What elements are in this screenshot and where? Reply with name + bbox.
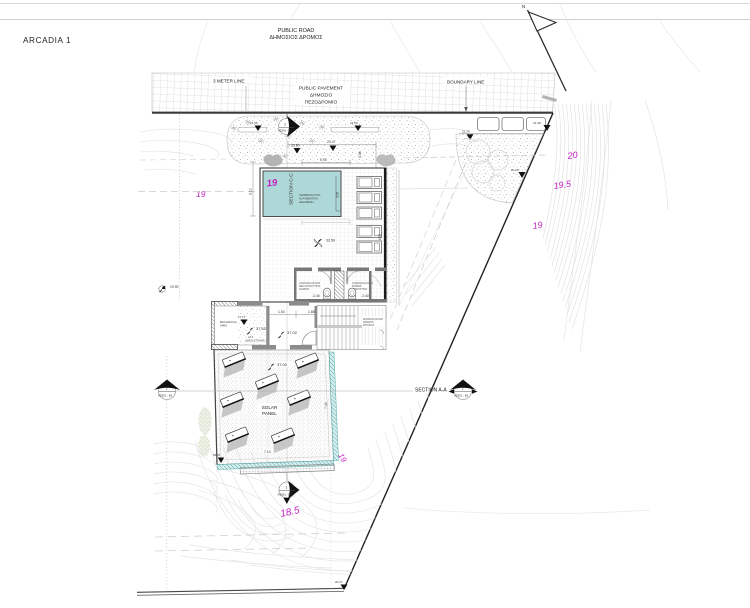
svg-text:20.25: 20.25	[511, 168, 519, 172]
svg-text:ΔΕΞΑΜΕΝΗ: ΔΕΞΑΜΕΝΗ	[299, 200, 314, 204]
svg-text:33.50: 33.50	[291, 144, 300, 148]
svg-text:1.50: 1.50	[278, 310, 285, 314]
svg-text:19: 19	[532, 220, 543, 231]
svg-text:MECHANICAL: MECHANICAL	[220, 320, 238, 324]
svg-text:2: 2	[166, 387, 168, 391]
svg-text:17.77: 17.77	[238, 315, 245, 319]
svg-text:A3351 - B1: A3351 - B1	[278, 493, 293, 497]
svg-text:ARCADIA 1: ARCADIA 1	[23, 36, 71, 45]
svg-text:3.10: 3.10	[249, 188, 253, 195]
svg-text:N: N	[522, 4, 525, 9]
svg-text:BOUNDARY LINE: BOUNDARY LINE	[447, 80, 484, 85]
svg-text:3.05: 3.05	[336, 192, 340, 198]
svg-text:ΚΟΛΥΜΒΗΤΙΚΗ: ΚΟΛΥΜΒΗΤΙΚΗ	[299, 197, 318, 201]
svg-text:1.85: 1.85	[308, 310, 315, 314]
svg-text:20: 20	[566, 150, 578, 161]
svg-text:21.39: 21.39	[462, 130, 470, 134]
svg-text:SOLAR: SOLAR	[262, 405, 278, 410]
svg-text:37.62: 37.62	[256, 326, 267, 331]
svg-text:ΕΡΓΑΣΙΑΣ: ΕΡΓΑΣΙΑΣ	[363, 324, 375, 327]
svg-text:7.10: 7.10	[264, 450, 271, 454]
svg-text:18.20: 18.20	[213, 453, 220, 457]
svg-text:7.30: 7.30	[324, 402, 328, 409]
svg-text:AREA: AREA	[220, 324, 227, 328]
svg-text:ΔΗΜΟΣΙΟ: ΔΗΜΟΣΙΟ	[310, 93, 333, 99]
svg-text:ΠΕΖΟΔΡΟΜΙΟ: ΠΕΖΟΔΡΟΜΙΟ	[305, 100, 338, 106]
svg-text:ΔΗΜΟΣΙΟΣ ΔΡΟΜΟΣ: ΔΗΜΟΣΙΟΣ ΔΡΟΜΟΣ	[269, 35, 323, 41]
svg-text:37.00: 37.00	[277, 362, 288, 367]
svg-text:19: 19	[266, 177, 278, 189]
svg-text:1: 1	[284, 123, 286, 127]
svg-text:20.47: 20.47	[327, 140, 336, 144]
svg-text:(ΑΝΕΛΚΥΣΤΗΡΑΣ): (ΑΝΕΛΚΥΣΤΗΡΑΣ)	[245, 340, 266, 343]
svg-text:19: 19	[196, 189, 206, 199]
svg-text:19.90: 19.90	[170, 285, 179, 289]
svg-text:21.50: 21.50	[350, 121, 358, 125]
svg-text:A3351 - B1: A3351 - B1	[158, 394, 173, 398]
svg-text:PUBLIC PAVEMENT: PUBLIC PAVEMENT	[299, 86, 343, 92]
svg-text:20.27: 20.27	[335, 580, 343, 584]
svg-text:37.02: 37.02	[287, 330, 298, 335]
svg-text:3.46: 3.46	[358, 151, 362, 158]
svg-text:2.40: 2.40	[362, 294, 369, 298]
svg-text:33.50: 33.50	[326, 239, 335, 243]
svg-text:SECTION C-C: SECTION C-C	[289, 173, 295, 205]
svg-text:PANEL: PANEL	[262, 411, 277, 416]
svg-text:A3351 - B1: A3351 - B1	[278, 129, 292, 133]
svg-text:21.38: 21.38	[533, 121, 541, 125]
svg-text:PUBLIC ROAD: PUBLIC ROAD	[278, 28, 315, 34]
svg-text:SWIMMING POOL: SWIMMING POOL	[299, 193, 321, 197]
svg-text:2.40: 2.40	[313, 294, 320, 298]
svg-text:ΑΝΔΡΩΝ: ΑΝΔΡΩΝ	[299, 288, 309, 291]
svg-text:5.95: 5.95	[320, 158, 327, 162]
svg-text:6.35: 6.35	[378, 234, 382, 240]
svg-text:2: 2	[462, 387, 464, 391]
svg-text:A3351 - B1: A3351 - B1	[454, 394, 469, 398]
svg-text:1: 1	[286, 486, 288, 490]
svg-text:21.50: 21.50	[250, 121, 258, 125]
svg-text:3 METER LINE: 3 METER LINE	[213, 79, 244, 84]
